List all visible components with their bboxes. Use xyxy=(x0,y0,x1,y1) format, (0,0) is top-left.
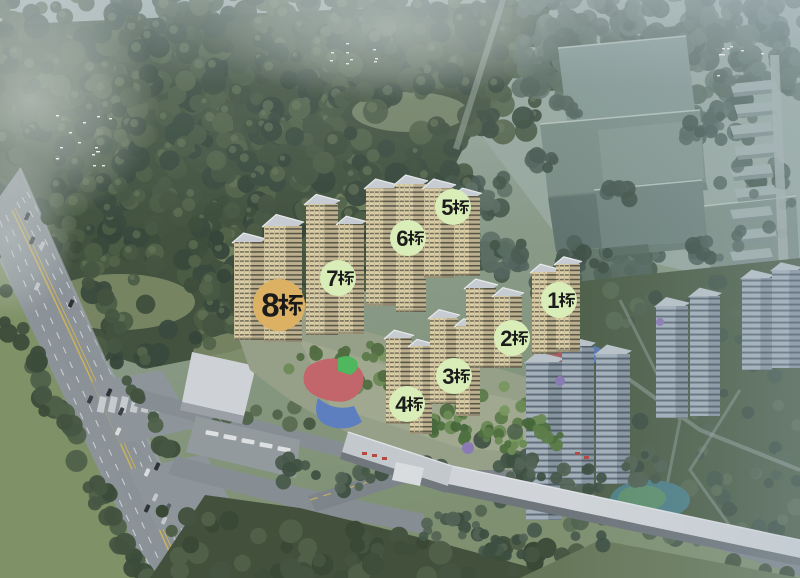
svg-text:6: 6 xyxy=(396,226,408,251)
svg-text:4: 4 xyxy=(395,392,408,417)
svg-text:5: 5 xyxy=(441,195,453,220)
svg-text:2: 2 xyxy=(500,326,512,351)
svg-text:3: 3 xyxy=(442,364,454,389)
svg-text:1: 1 xyxy=(547,288,559,313)
svg-text:8: 8 xyxy=(261,287,279,324)
svg-text:7: 7 xyxy=(326,266,338,291)
